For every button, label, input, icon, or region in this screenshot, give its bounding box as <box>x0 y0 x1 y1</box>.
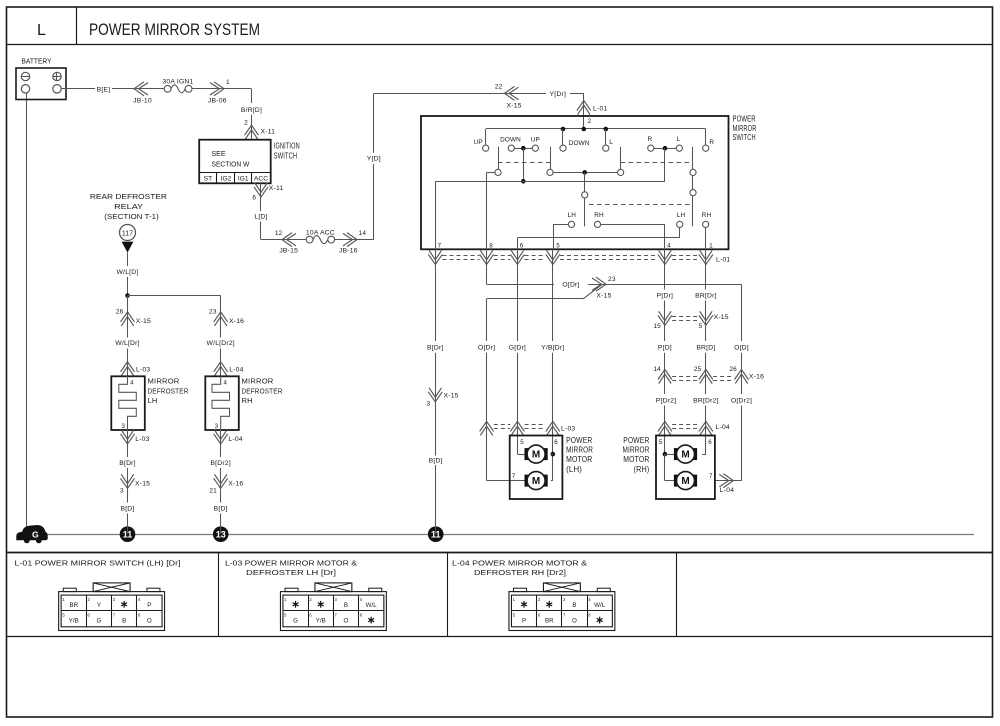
svg-text:30A IGN1: 30A IGN1 <box>162 78 193 85</box>
svg-text:W/L[D]: W/L[D] <box>117 269 139 276</box>
svg-text:UP: UP <box>474 139 483 146</box>
svg-text:L-03: L-03 <box>136 366 150 373</box>
svg-text:IGNITION: IGNITION <box>274 142 300 151</box>
svg-text:L[D]: L[D] <box>254 214 267 221</box>
svg-text:1: 1 <box>226 79 230 86</box>
svg-text:MIRROR: MIRROR <box>733 124 757 133</box>
svg-text:Y/B[Dr]: Y/B[Dr] <box>541 345 564 352</box>
svg-text:X-16: X-16 <box>229 318 244 325</box>
svg-text:O[Dr2]: O[Dr2] <box>731 398 752 405</box>
svg-text:X-16: X-16 <box>228 480 243 487</box>
svg-text:MIRROR: MIRROR <box>242 377 274 386</box>
svg-text:RH: RH <box>594 212 604 219</box>
svg-text:L-04 POWER MIRROR MOTOR &: L-04 POWER MIRROR MOTOR & <box>452 558 587 567</box>
svg-text:MIRROR: MIRROR <box>148 377 180 386</box>
svg-text:6: 6 <box>554 439 558 446</box>
svg-text:ACC: ACC <box>254 176 268 183</box>
svg-text:O[Dr]: O[Dr] <box>478 345 495 352</box>
svg-text:G: G <box>97 618 102 625</box>
svg-text:6: 6 <box>520 242 524 249</box>
svg-text:BATTERY: BATTERY <box>22 57 52 66</box>
svg-text:POWER: POWER <box>566 436 592 445</box>
svg-text:P[Dr]: P[Dr] <box>657 293 673 300</box>
svg-text:O: O <box>147 618 152 625</box>
svg-text:MOTOR: MOTOR <box>623 455 649 464</box>
svg-text:ST: ST <box>204 176 212 183</box>
svg-text:X-15: X-15 <box>714 314 729 321</box>
svg-text:L-01: L-01 <box>716 257 730 264</box>
svg-text:B: B <box>572 602 576 609</box>
svg-text:O[Dr]: O[Dr] <box>562 282 579 289</box>
svg-text:SECTION W: SECTION W <box>212 160 251 169</box>
svg-text:X-15: X-15 <box>596 293 611 300</box>
svg-text:R: R <box>647 136 652 143</box>
svg-text:X-15: X-15 <box>135 480 150 487</box>
svg-text:L: L <box>609 139 613 146</box>
svg-text:M: M <box>681 450 689 461</box>
svg-text:B: B <box>122 618 126 625</box>
svg-text:23: 23 <box>608 276 616 283</box>
svg-text:X-16: X-16 <box>749 373 764 380</box>
svg-text:JB-15: JB-15 <box>279 247 298 254</box>
svg-text:O: O <box>572 618 577 625</box>
svg-text:R: R <box>709 139 714 146</box>
svg-text:7: 7 <box>512 473 516 480</box>
svg-text:5: 5 <box>659 439 663 446</box>
svg-text:JB-16: JB-16 <box>339 247 358 254</box>
svg-text:25: 25 <box>694 366 702 373</box>
svg-text:B[D]: B[D] <box>120 505 134 512</box>
svg-text:LH: LH <box>568 212 577 219</box>
svg-text:O[D]: O[D] <box>734 345 749 352</box>
svg-text:POWER MIRROR SYSTEM: POWER MIRROR SYSTEM <box>89 21 260 39</box>
svg-text:BR[D]: BR[D] <box>696 345 715 352</box>
svg-text:5: 5 <box>699 323 703 330</box>
svg-text:IG1: IG1 <box>238 176 249 183</box>
svg-text:B[D]: B[D] <box>429 457 443 464</box>
svg-text:MIRROR: MIRROR <box>623 446 650 455</box>
svg-text:26: 26 <box>116 308 124 315</box>
svg-text:L-03: L-03 <box>561 426 575 433</box>
svg-text:L: L <box>677 136 681 143</box>
svg-text:Y[D]: Y[D] <box>367 155 381 162</box>
svg-text:L-04: L-04 <box>229 366 243 373</box>
svg-text:DEFROSTER RH [Dr2]: DEFROSTER RH [Dr2] <box>474 568 566 577</box>
svg-text:BR[Dr2]: BR[Dr2] <box>693 398 719 405</box>
svg-text:L-04: L-04 <box>228 436 242 443</box>
svg-text:L-04: L-04 <box>720 487 734 494</box>
svg-text:23: 23 <box>209 308 217 315</box>
svg-text:7: 7 <box>709 473 713 480</box>
svg-text:G[Dr]: G[Dr] <box>509 345 526 352</box>
svg-text:6: 6 <box>252 195 256 202</box>
svg-text:M: M <box>532 476 540 487</box>
svg-text:IG2: IG2 <box>221 176 232 183</box>
svg-text:BR: BR <box>69 602 78 609</box>
svg-text:DEFROSTER LH [Dr]: DEFROSTER LH [Dr] <box>246 568 336 577</box>
svg-text:MOTOR: MOTOR <box>566 455 592 464</box>
svg-text:L-01 POWER MIRROR SWITCH (LH): L-01 POWER MIRROR SWITCH (LH) [Dr] <box>15 558 181 567</box>
svg-text:W/L: W/L <box>594 602 606 609</box>
svg-text:7: 7 <box>438 242 442 249</box>
svg-text:B[D]: B[D] <box>214 505 228 512</box>
svg-text:26: 26 <box>729 366 737 373</box>
svg-text:SWITCH: SWITCH <box>733 133 756 142</box>
svg-text:B[Dr2]: B[Dr2] <box>210 460 230 467</box>
svg-text:P: P <box>147 602 151 609</box>
svg-text:BR: BR <box>545 618 554 625</box>
svg-text:B[E]: B[E] <box>97 86 111 93</box>
svg-text:DOWN: DOWN <box>500 137 521 144</box>
svg-text:117: 117 <box>122 230 133 237</box>
svg-text:L-04: L-04 <box>716 424 730 431</box>
svg-text:JB-10: JB-10 <box>133 98 152 105</box>
svg-text:X-15: X-15 <box>444 392 459 399</box>
svg-text:M: M <box>532 450 540 461</box>
svg-text:3: 3 <box>426 401 430 408</box>
svg-text:RH: RH <box>242 396 253 405</box>
svg-text:DEFROSTER: DEFROSTER <box>148 386 189 395</box>
svg-text:MIRROR: MIRROR <box>566 446 593 455</box>
svg-text:4: 4 <box>667 242 671 249</box>
svg-text:(LH): (LH) <box>566 465 582 474</box>
svg-text:DEFROSTER: DEFROSTER <box>242 386 283 395</box>
svg-text:Y/B: Y/B <box>69 618 79 625</box>
svg-text:L-03 POWER MIRROR MOTOR &: L-03 POWER MIRROR MOTOR & <box>225 558 357 567</box>
svg-text:P[Dr2]: P[Dr2] <box>656 398 676 405</box>
svg-text:BR[Dr]: BR[Dr] <box>695 293 717 300</box>
svg-text:1: 1 <box>709 242 713 249</box>
svg-text:22: 22 <box>495 84 503 91</box>
svg-text:Y: Y <box>97 602 101 609</box>
svg-text:X-11: X-11 <box>269 185 284 192</box>
svg-text:SEE: SEE <box>212 149 226 158</box>
svg-text:5: 5 <box>556 242 560 249</box>
svg-text:X-15: X-15 <box>507 103 522 110</box>
svg-text:W/L: W/L <box>366 602 378 609</box>
svg-text:POWER: POWER <box>733 115 756 124</box>
svg-text:O: O <box>344 618 349 625</box>
svg-text:5: 5 <box>520 439 524 446</box>
svg-text:L-01: L-01 <box>593 106 607 113</box>
svg-text:12: 12 <box>275 230 283 237</box>
svg-text:2: 2 <box>244 120 248 127</box>
svg-text:14: 14 <box>359 230 367 237</box>
svg-text:8: 8 <box>489 242 493 249</box>
svg-text:3: 3 <box>120 487 124 494</box>
svg-text:X-15: X-15 <box>136 318 151 325</box>
svg-text:DOWN: DOWN <box>569 140 590 147</box>
svg-text:Y[Dr]: Y[Dr] <box>550 91 566 98</box>
svg-text:W/L[Dr2]: W/L[Dr2] <box>206 340 234 347</box>
svg-text:2: 2 <box>588 118 592 125</box>
svg-text:REAR DEFROSTER: REAR DEFROSTER <box>90 192 167 201</box>
svg-text:LH: LH <box>148 396 158 405</box>
svg-text:W/L[Dr]: W/L[Dr] <box>115 340 139 347</box>
svg-text:P[D]: P[D] <box>658 345 672 352</box>
svg-text:L-03: L-03 <box>135 436 149 443</box>
svg-text:(RH): (RH) <box>634 465 650 474</box>
svg-text:B[Dr]: B[Dr] <box>427 345 443 352</box>
svg-text:14: 14 <box>653 366 661 373</box>
svg-text:X-11: X-11 <box>261 129 276 136</box>
svg-text:L: L <box>37 22 46 39</box>
svg-text:21: 21 <box>209 487 217 494</box>
svg-text:10A ACC: 10A ACC <box>306 229 335 236</box>
svg-text:SWITCH: SWITCH <box>274 152 297 161</box>
svg-text:15: 15 <box>653 323 661 330</box>
svg-text:6: 6 <box>708 439 712 446</box>
svg-text:Y/B: Y/B <box>316 618 326 625</box>
svg-text:UP: UP <box>531 137 540 144</box>
svg-text:POWER: POWER <box>623 436 649 445</box>
svg-text:LH: LH <box>677 212 686 219</box>
svg-text:P: P <box>522 618 526 625</box>
svg-text:RH: RH <box>702 212 712 219</box>
svg-text:RELAY: RELAY <box>114 202 143 211</box>
svg-text:B/R[D]: B/R[D] <box>241 107 262 114</box>
svg-text:G: G <box>32 529 39 539</box>
svg-text:B[Dr]: B[Dr] <box>119 460 135 467</box>
svg-text:G: G <box>293 618 298 625</box>
svg-text:JB-06: JB-06 <box>208 98 227 105</box>
svg-text:B: B <box>344 602 348 609</box>
svg-text:M: M <box>681 476 689 487</box>
svg-text:(SECTION T-1): (SECTION T-1) <box>104 212 159 221</box>
